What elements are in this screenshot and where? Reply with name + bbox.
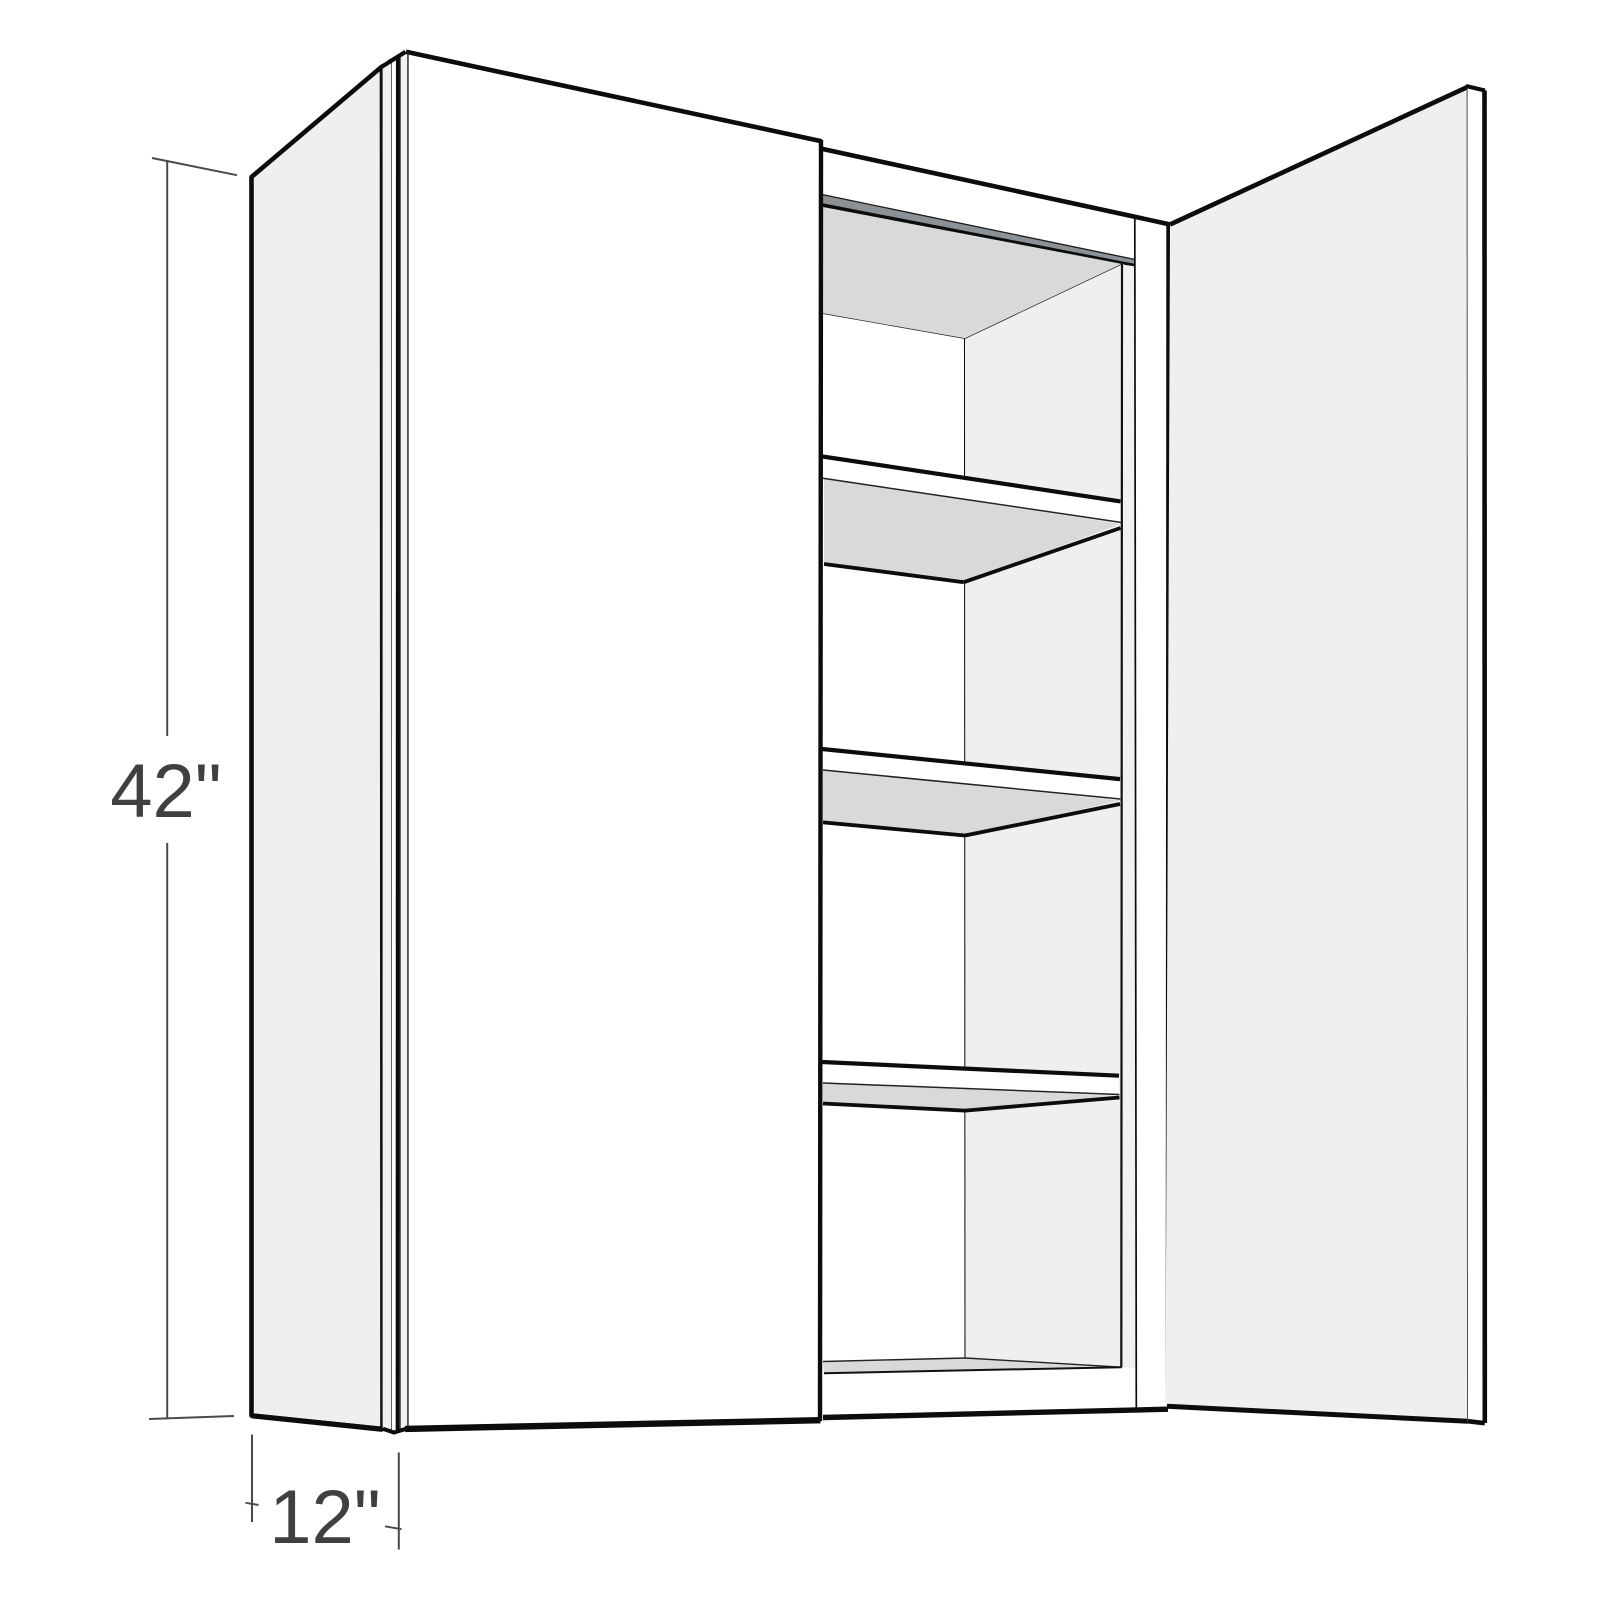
svg-text:12": 12" — [269, 1475, 381, 1560]
svg-text:42": 42" — [110, 749, 222, 834]
